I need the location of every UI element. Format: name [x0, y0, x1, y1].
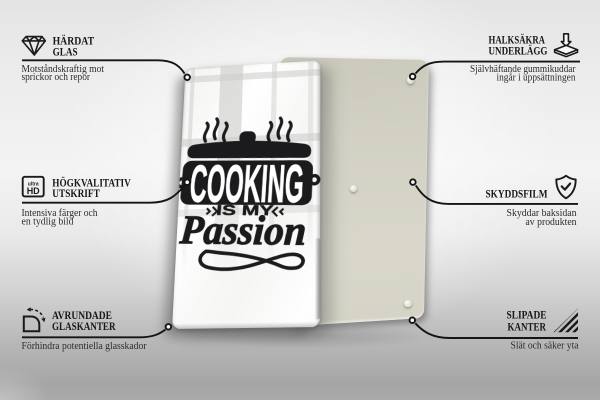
- svg-text:Förhindra potentiella glasskad: Förhindra potentiella glasskador: [22, 341, 148, 352]
- svg-text:SLIPADE: SLIPADE: [507, 309, 547, 321]
- svg-text:av produkten: av produkten: [526, 217, 577, 228]
- svg-text:KANTER: KANTER: [508, 321, 547, 333]
- svg-text:Slät och säker yta: Slät och säker yta: [511, 340, 580, 351]
- svg-text:SKYDDSFILM: SKYDDSFILM: [486, 188, 548, 200]
- svg-text:GLASKANTER: GLASKANTER: [52, 321, 116, 333]
- svg-text:UNDERLÄGG: UNDERLÄGG: [489, 44, 548, 58]
- svg-text:sprickor och repor: sprickor och repor: [22, 72, 91, 83]
- svg-text:UTSKRIFT: UTSKRIFT: [52, 188, 100, 200]
- svg-text:en tydlig bild: en tydlig bild: [22, 217, 74, 228]
- svg-text:HÄRDAT: HÄRDAT: [53, 33, 95, 47]
- svg-text:HALKSÄKRA: HALKSÄKRA: [489, 33, 546, 47]
- svg-text:HD: HD: [27, 186, 40, 196]
- svg-text:ingår i uppsättningen: ingår i uppsättningen: [497, 72, 576, 83]
- svg-text:GLAS: GLAS: [53, 46, 78, 58]
